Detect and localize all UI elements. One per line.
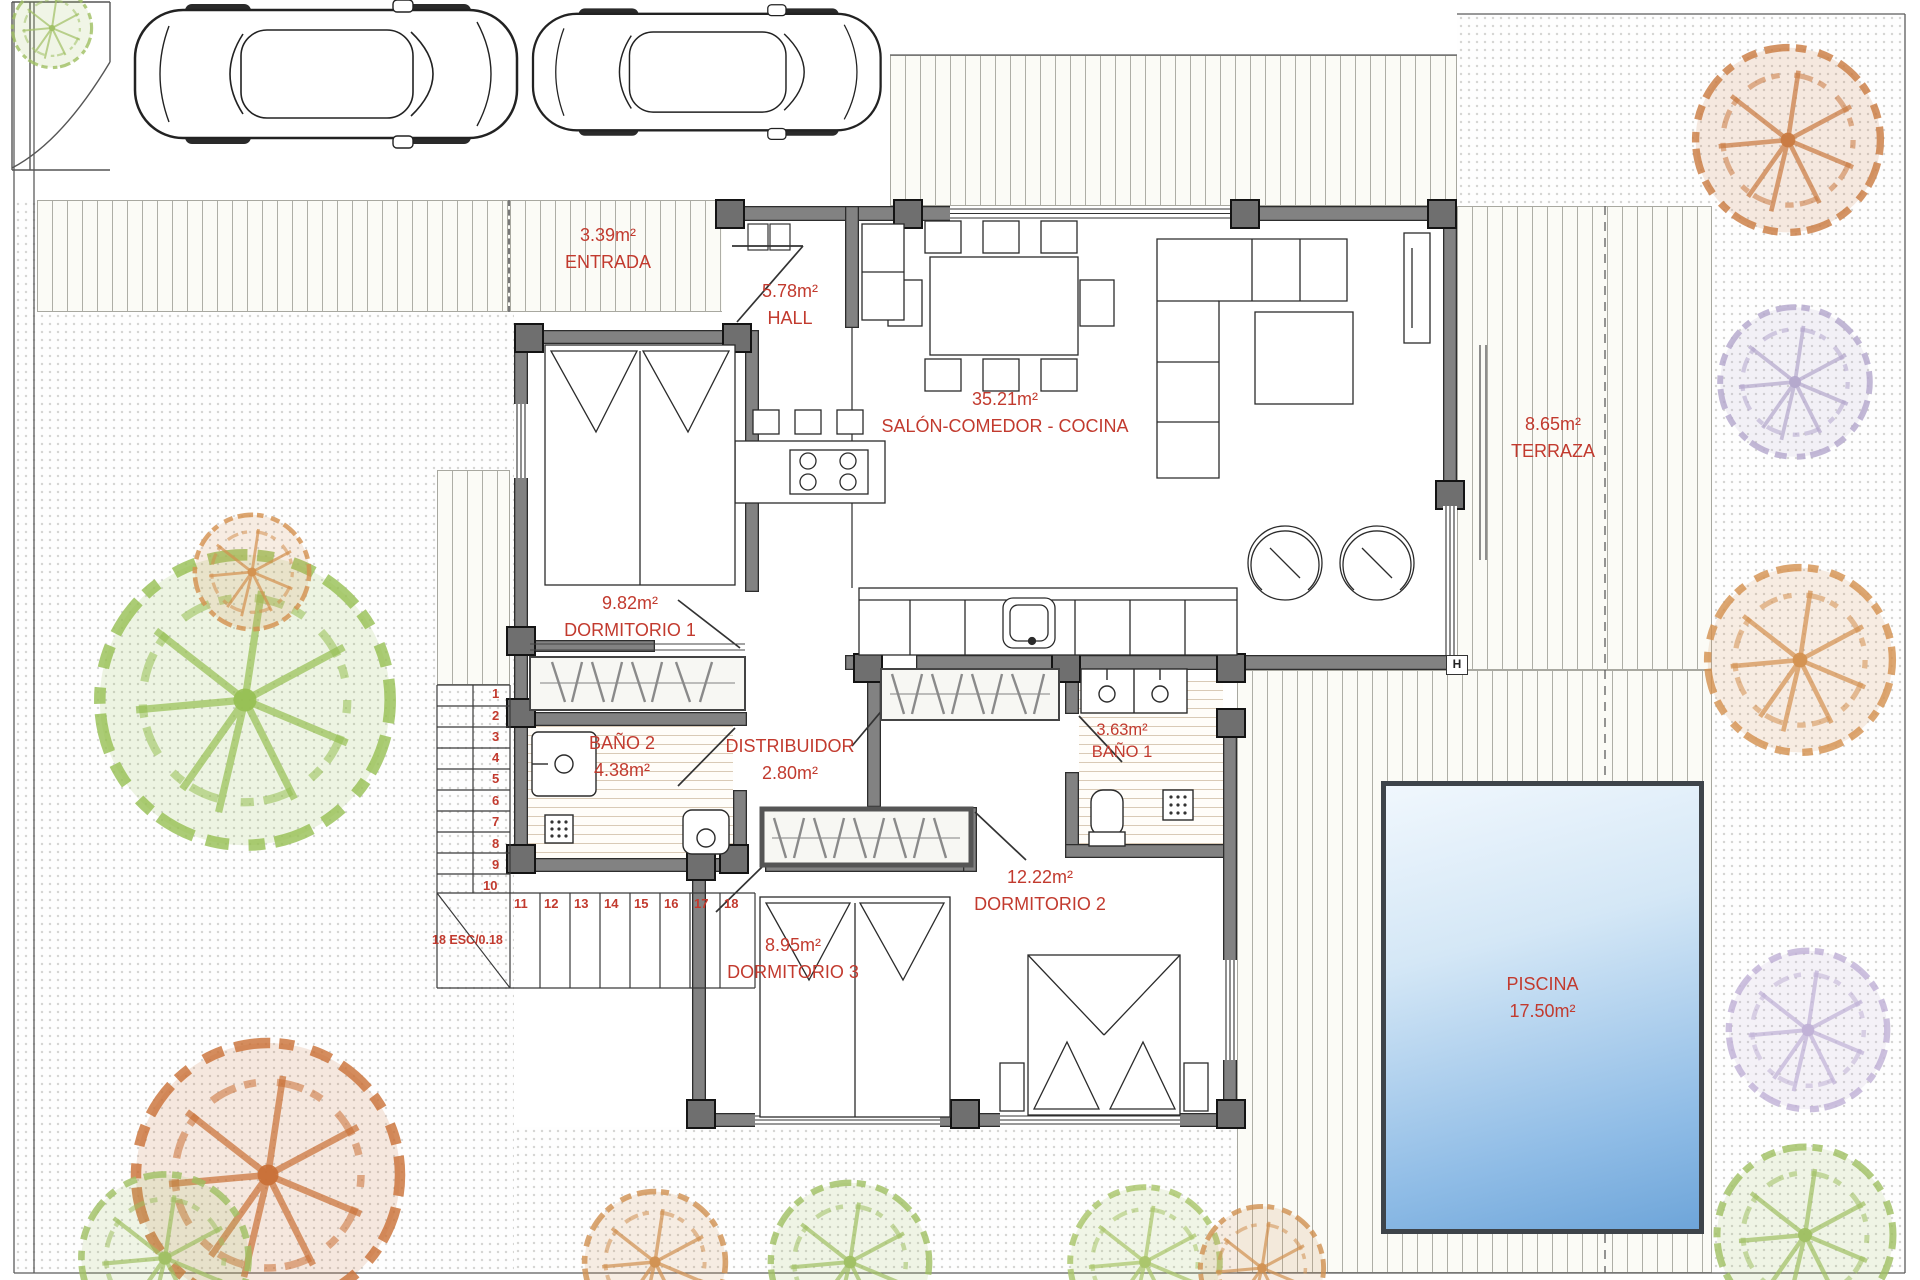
room-name: BAÑO 1 (1092, 741, 1153, 763)
stair-number: 13 (574, 897, 588, 910)
room-label-terraza: 8.65m² TERRAZA (1511, 411, 1595, 465)
room-label-dormitorio2: 12.22m² DORMITORIO 2 (974, 864, 1106, 918)
tree-purple (1729, 951, 1887, 1109)
room-area: 35.21m² (881, 386, 1128, 413)
stair-number: 8 (492, 837, 499, 850)
tree-orange (1200, 1206, 1323, 1280)
bed-dormitorio3 (760, 897, 950, 1117)
stair-number: 3 (492, 730, 499, 743)
room-name: TERRAZA (1511, 438, 1595, 465)
tree-orange (1696, 48, 1881, 233)
tv-unit (1404, 233, 1430, 343)
tree-orange (1708, 568, 1893, 753)
plan-linework (0, 0, 1920, 1280)
room-area: 8.95m² (727, 932, 859, 959)
floor-plan: PISCINA 17.50m² (0, 0, 1920, 1280)
room-name: ENTRADA (565, 249, 651, 276)
room-area: 2.80m² (725, 760, 854, 787)
stair-number: 15 (634, 897, 648, 910)
stair-number: 5 (492, 772, 499, 785)
room-name: DORMITORIO 2 (974, 891, 1106, 918)
room-label-dormitorio3: 8.95m² DORMITORIO 3 (727, 932, 859, 986)
lounge-chairs (1248, 526, 1414, 600)
room-area: 8.65m² (1511, 411, 1595, 438)
tree-orange-small (195, 515, 309, 629)
room-area: 12.22m² (974, 864, 1106, 891)
room-label-dormitorio1: 9.82m² DORMITORIO 1 (564, 590, 696, 644)
stair-number: 6 (492, 794, 499, 807)
kitchen-tall-unit (862, 224, 904, 320)
bed-dormitorio2 (1000, 955, 1208, 1115)
kitchen-counter (859, 588, 1237, 655)
toilet (1091, 790, 1123, 836)
stair-number: 10 (483, 879, 497, 892)
tree-green (771, 1183, 929, 1280)
room-name: SALÓN-COMEDOR - COCINA (881, 413, 1128, 440)
stair-number: 4 (492, 751, 499, 764)
stair-number: 16 (664, 897, 678, 910)
room-label-bano1: 3.63m² BAÑO 1 (1092, 719, 1153, 764)
kitchen-island (735, 410, 885, 503)
room-area: 3.39m² (565, 222, 651, 249)
room-name: HALL (762, 305, 818, 332)
stair-number: 7 (492, 815, 499, 828)
room-area: 3.63m² (1092, 719, 1153, 741)
room-name: DORMITORIO 3 (727, 959, 859, 986)
stair-number: 12 (544, 897, 558, 910)
room-label-hall: 5.78m² HALL (762, 278, 818, 332)
tree-orange (585, 1192, 726, 1280)
room-name: DISTRIBUIDOR (725, 733, 854, 760)
height-marker: H (1446, 655, 1468, 675)
car-2-top-view (533, 5, 881, 140)
stair-number: 2 (492, 709, 499, 722)
stair-number: 14 (604, 897, 618, 910)
closet-dormitorio1 (530, 644, 745, 710)
room-area: 9.82m² (564, 590, 696, 617)
room-label-salon: 35.21m² SALÓN-COMEDOR - COCINA (881, 386, 1128, 440)
coffee-table (1255, 312, 1353, 404)
closet-corridor (881, 669, 1059, 720)
dining-table-set (888, 221, 1114, 391)
terraza-rail (1480, 345, 1486, 560)
tree-green (1717, 1147, 1893, 1280)
shower-drain (550, 820, 567, 837)
stair-number: 18 (724, 897, 738, 910)
closet-dormitorio2-3 (762, 809, 971, 865)
room-area: 4.38m² (589, 757, 655, 784)
stair-number: 9 (492, 858, 499, 871)
stairs-spec-label: 18 ESC/0.18 (432, 934, 503, 947)
bed-dormitorio1 (545, 345, 735, 585)
stair-number: 1 (492, 687, 499, 700)
room-name: DORMITORIO 1 (564, 617, 696, 644)
room-label-entrada: 3.39m² ENTRADA (565, 222, 651, 276)
room-label-distribuidor: DISTRIBUIDOR 2.80m² (725, 733, 854, 787)
room-label-bano2: BAÑO 2 4.38m² (589, 730, 655, 784)
car-1-top-view (135, 0, 517, 148)
tree-green-small (12, 0, 91, 68)
room-name: BAÑO 2 (589, 730, 655, 757)
tree-purple (1720, 307, 1870, 457)
room-area: 5.78m² (762, 278, 818, 305)
dorm2-door (975, 812, 1026, 860)
stair-number: 11 (514, 897, 528, 910)
stair-number: 17 (694, 897, 708, 910)
tree-green (1070, 1187, 1220, 1280)
